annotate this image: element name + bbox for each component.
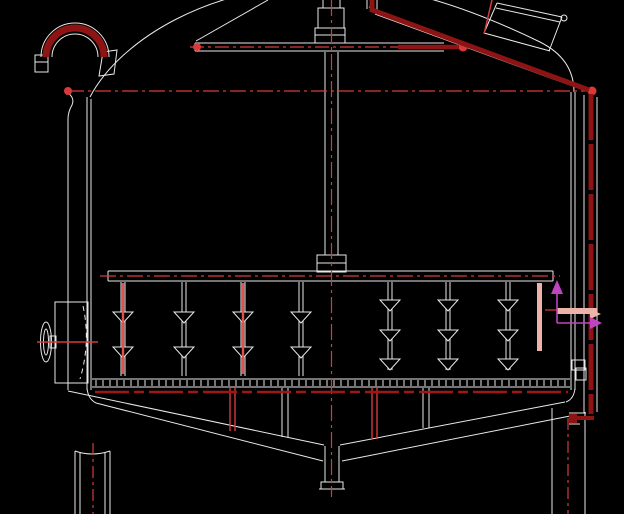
tine-blade bbox=[380, 359, 400, 370]
tine-blade bbox=[380, 300, 400, 311]
feed-pipe bbox=[372, 10, 589, 90]
tine-blade bbox=[498, 359, 518, 370]
left-standpipe bbox=[68, 93, 73, 390]
leader-arrow-right bbox=[590, 317, 602, 329]
node-marker bbox=[64, 87, 72, 95]
tine-blade bbox=[380, 330, 400, 341]
cone-left-upper bbox=[68, 391, 324, 445]
drawing-svg bbox=[0, 0, 624, 514]
cad-drawing-canvas[interactable] bbox=[0, 0, 624, 514]
swan-neck-inner bbox=[52, 34, 98, 57]
tine-blade bbox=[498, 330, 518, 341]
selected-tine bbox=[537, 283, 542, 351]
tine-blade bbox=[438, 330, 458, 341]
tine-blade bbox=[174, 347, 194, 358]
platform-brace bbox=[196, 0, 268, 41]
tine-blade bbox=[438, 300, 458, 311]
tine-blade bbox=[498, 300, 518, 311]
tine-blade bbox=[438, 359, 458, 370]
swan-neck-flange bbox=[35, 55, 48, 72]
node-marker bbox=[193, 43, 201, 51]
tine-blade bbox=[174, 312, 194, 323]
leader-arrow-up bbox=[551, 280, 563, 294]
tine-blade bbox=[291, 347, 311, 358]
white-geometry bbox=[35, 0, 597, 514]
cone-left-lower bbox=[96, 403, 323, 461]
selection-highlight bbox=[537, 283, 601, 351]
drain-fitting bbox=[569, 414, 577, 423]
wall-corner-right bbox=[566, 388, 575, 402]
swan-neck-pipe bbox=[46, 28, 104, 57]
leader-annotations bbox=[551, 280, 602, 329]
tine-blade bbox=[291, 312, 311, 323]
dome-nozzle bbox=[549, 17, 562, 51]
